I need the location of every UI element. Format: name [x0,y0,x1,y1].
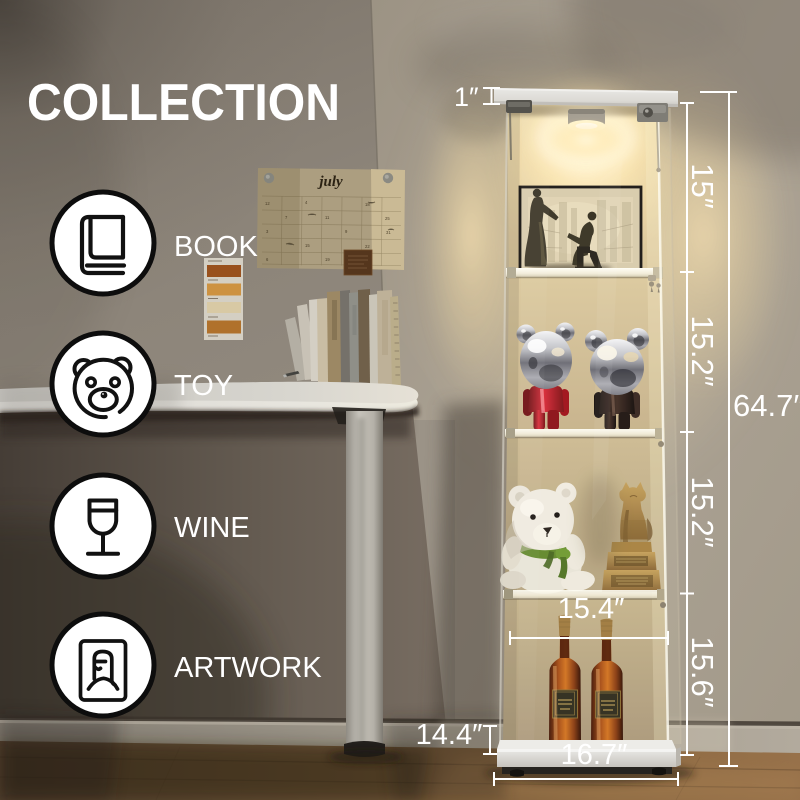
svg-text:31: 31 [386,230,391,235]
svg-text:15.4″: 15.4″ [558,593,625,625]
svg-text:ARTWORK: ARTWORK [174,652,322,684]
svg-text:14.4″: 14.4″ [416,719,483,751]
svg-text:15.2″: 15.2″ [685,315,720,386]
svg-text:16.7″: 16.7″ [561,739,628,771]
svg-text:BOOK: BOOK [174,231,258,263]
svg-text:15.2″: 15.2″ [685,476,720,547]
svg-text:TOY: TOY [174,370,233,402]
svg-text:11: 11 [325,215,330,220]
svg-text:15.6″: 15.6″ [685,636,720,707]
svg-text:WINE: WINE [174,512,250,544]
svg-text:64.7″: 64.7″ [733,388,800,423]
svg-text:22: 22 [365,244,370,249]
svg-text:1″: 1″ [454,82,479,112]
svg-text:july: july [317,174,343,190]
svg-text:19: 19 [325,257,330,262]
svg-text:25: 25 [385,216,390,221]
svg-text:15″: 15″ [685,163,720,208]
svg-text:15: 15 [305,243,310,248]
svg-text:12: 12 [265,201,270,206]
svg-text:COLLECTION: COLLECTION [27,74,340,132]
